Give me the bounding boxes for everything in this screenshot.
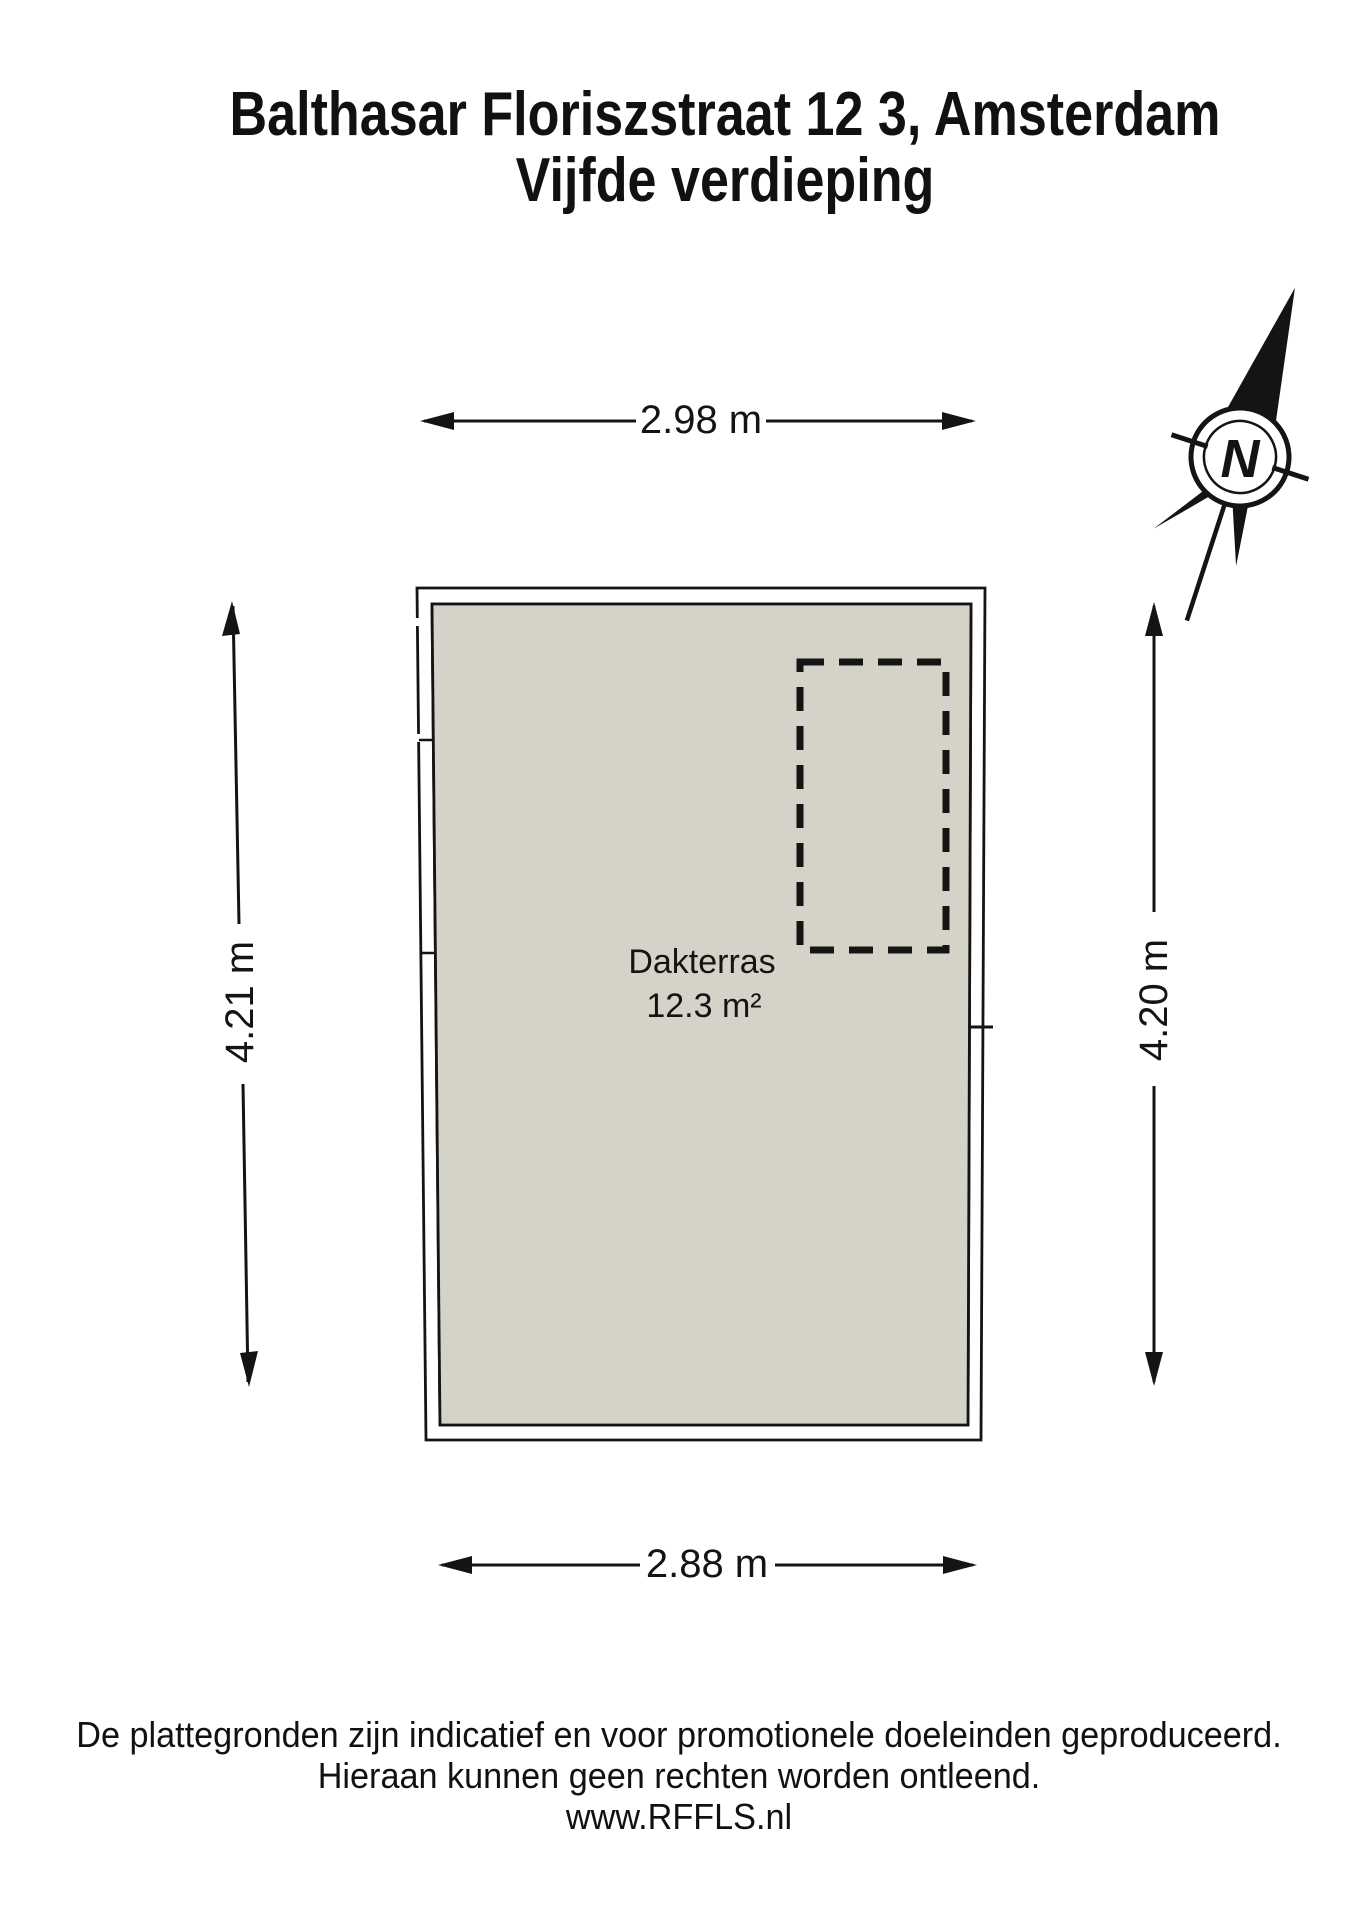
compass-north-label: N [1221, 429, 1261, 489]
dim-top-arrow-right [942, 412, 976, 430]
dim-right-arrow-down [1145, 1352, 1163, 1386]
compass-tail-line [1187, 495, 1228, 621]
dim-right-label: 4.20 m [1132, 939, 1176, 1061]
compass-rose: N [1118, 265, 1358, 642]
floorplan-page: Balthasar Floriszstraat 12 3, Amsterdam … [0, 0, 1358, 1920]
wall-joint-gap-1 [413, 618, 420, 626]
footer-disclaimer: De plattegronden zijn indicatief en voor… [34, 1714, 1324, 1837]
dim-bottom-arrow-right [943, 1556, 977, 1574]
dim-top-label: 2.98 m [640, 398, 762, 442]
footer-line-1: De plattegronden zijn indicatief en voor… [34, 1714, 1324, 1755]
dim-left-label: 4.21 m [218, 941, 262, 1063]
dimension-top: 2.98 m [420, 398, 976, 442]
dim-right-arrow-up [1145, 602, 1163, 636]
footer-line-2: Hieraan kunnen geen rechten worden ontle… [34, 1755, 1324, 1796]
dimension-right: 4.20 m [1132, 602, 1176, 1386]
floor-plan-drawing: N Dakterras 12.3 m² 2.98 m [0, 0, 1358, 1920]
dim-left-arrow-up [222, 601, 240, 636]
dim-bottom-arrow-left [438, 1556, 472, 1574]
dim-bottom-label: 2.88 m [646, 1542, 768, 1586]
footer-website: www.RFFLS.nl [34, 1796, 1324, 1837]
dimension-left: 4.21 m [218, 601, 262, 1387]
room-name-label: Dakterras [628, 943, 775, 981]
dim-left-line-top [233, 606, 239, 924]
dim-left-arrow-down [240, 1351, 258, 1387]
dim-top-arrow-left [420, 412, 454, 430]
dimension-bottom: 2.88 m [438, 1542, 977, 1586]
room-area-label: 12.3 m² [646, 987, 761, 1025]
dim-left-line-bottom [243, 1084, 248, 1382]
